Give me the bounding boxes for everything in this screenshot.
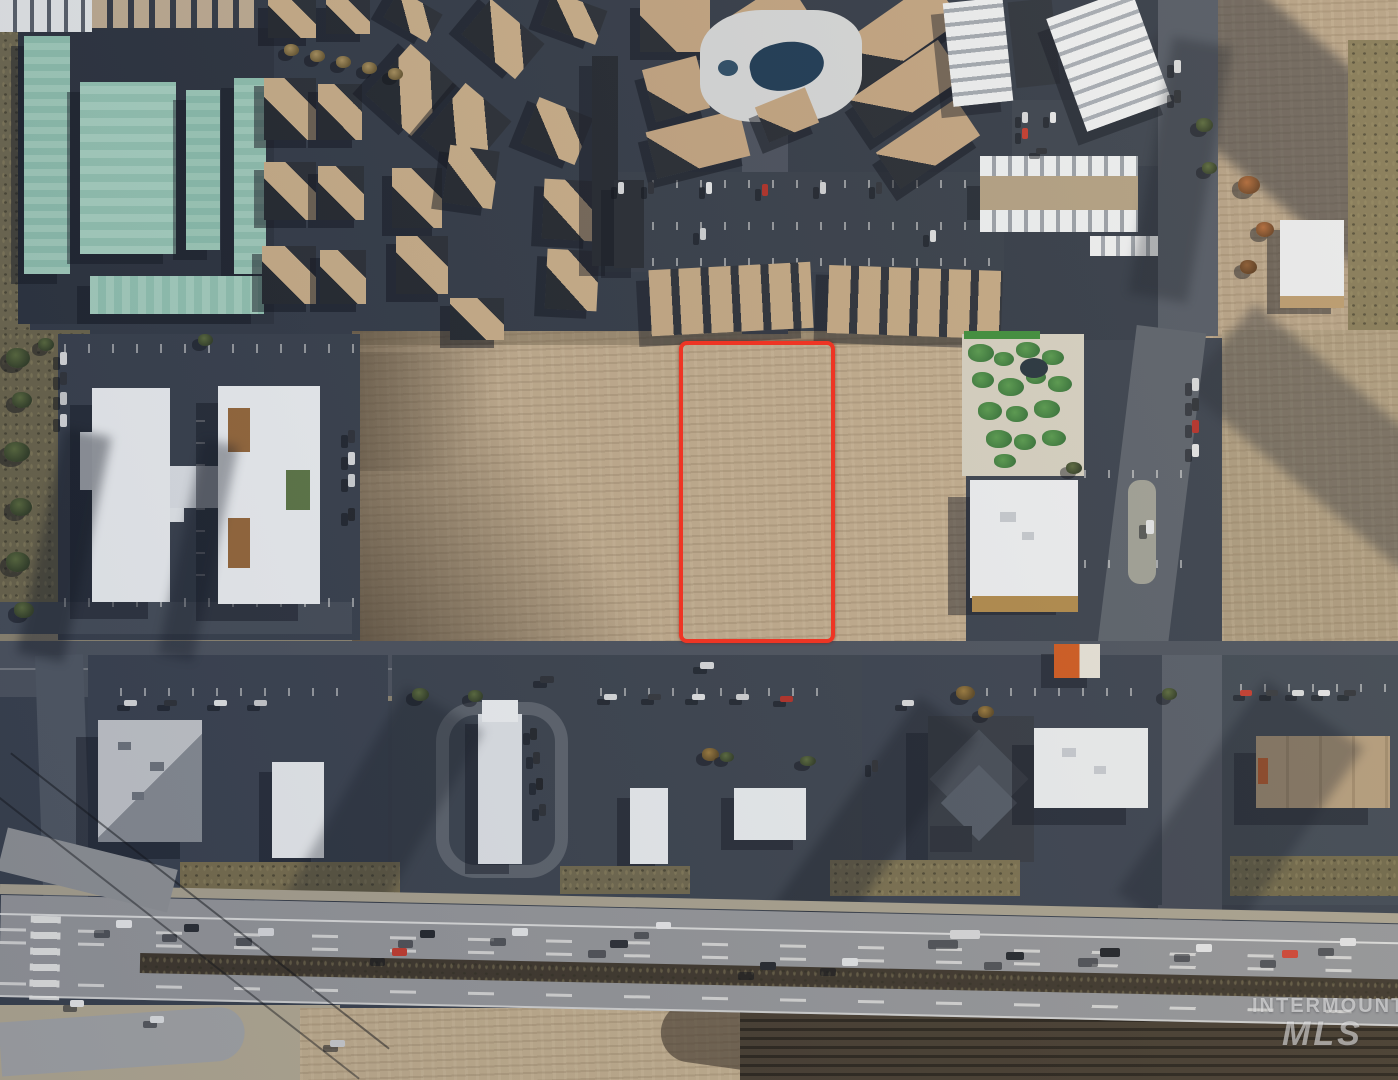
watermark-mls-text: MLS <box>1282 1015 1398 1054</box>
mls-watermark: INTERMOUNTAIN MLS <box>1252 995 1398 1054</box>
aerial-photo-stage: INTERMOUNTAIN MLS <box>0 0 1398 1080</box>
property-boundary <box>679 341 835 643</box>
